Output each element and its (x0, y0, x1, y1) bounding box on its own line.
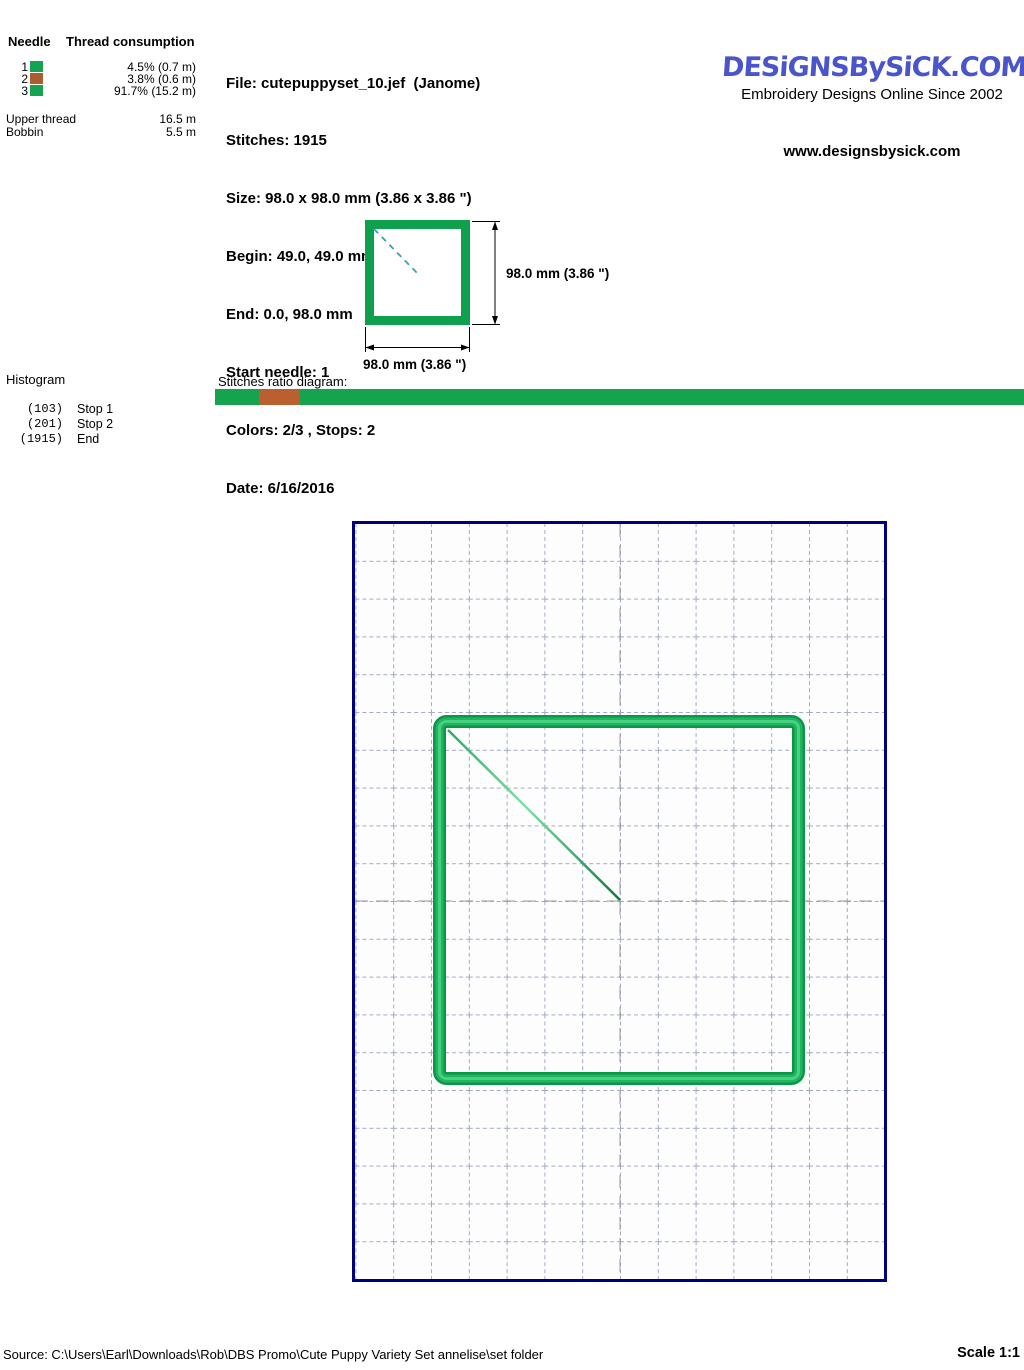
stitch-count: (201) (0, 417, 63, 431)
ratio-segment (259, 389, 300, 405)
size-dimension-diagram: 98.0 mm (3.86 ") 98.0 mm (3.86 ") (348, 212, 638, 377)
arrowhead-up-icon (492, 222, 498, 231)
design-preview-frame (352, 521, 887, 1282)
width-dimension-label: 98.0 mm (3.86 ") (363, 357, 466, 372)
scale-label: Scale 1:1 (957, 1345, 1020, 1361)
file-name-line: File: cutepuppyset_10.jef (Janome) (226, 74, 480, 93)
needle-number: 3 (0, 84, 28, 98)
bobbin-value: 5.5 m (66, 125, 196, 139)
designsbysick-logo: DESiGNSBySiCK.COM (721, 52, 1023, 83)
ratio-segment (300, 389, 1024, 405)
thread-percent: 91.7% (15.2 m) (60, 84, 196, 98)
brand-tagline: Embroidery Designs Online Since 2002 (722, 86, 1022, 103)
thread-color-swatch (30, 73, 43, 84)
branding-block: DESiGNSBySiCK.COM Embroidery Designs Onl… (722, 52, 1022, 160)
ratio-segment (215, 389, 259, 405)
thread-color-swatch (30, 85, 43, 96)
stitches-line: Stitches: 1915 (226, 131, 480, 150)
bobbin-label: Bobbin (6, 125, 43, 139)
design-sheet: Needle Thread consumption 1 4.5% (0.7 m)… (0, 0, 1024, 1370)
needle-column-header: Needle (8, 34, 51, 49)
stitches-ratio-label: Stitches ratio diagram: (218, 374, 347, 389)
stop-label: Stop 2 (77, 417, 113, 431)
design-preview-canvas (355, 524, 884, 1279)
stitch-count: (103) (0, 402, 63, 416)
colors-stops-line: Colors: 2/3 , Stops: 2 (226, 421, 480, 440)
arrowhead-left-icon (366, 345, 375, 351)
source-path: Source: C:\Users\Earl\Downloads\Rob\DBS … (3, 1347, 543, 1362)
arrowhead-down-icon (492, 316, 498, 325)
histogram-title: Histogram (6, 372, 65, 387)
thread-consumption-header: Thread consumption (66, 34, 195, 49)
stitch-count: (1915) (0, 432, 63, 446)
thread-color-swatch (30, 61, 43, 72)
stop-label: Stop 1 (77, 402, 113, 416)
brand-website: www.designsbysick.com (722, 143, 1022, 160)
arrowhead-right-icon (461, 345, 470, 351)
stitches-ratio-bar (215, 389, 1024, 405)
upper-thread-value: 16.5 m (66, 112, 196, 126)
date-line: Date: 6/16/2016 (226, 479, 480, 498)
height-dimension-label: 98.0 mm (3.86 ") (506, 266, 609, 281)
end-label: End (77, 432, 99, 446)
size-line: Size: 98.0 x 98.0 mm (3.86 x 3.86 ") (226, 189, 480, 208)
